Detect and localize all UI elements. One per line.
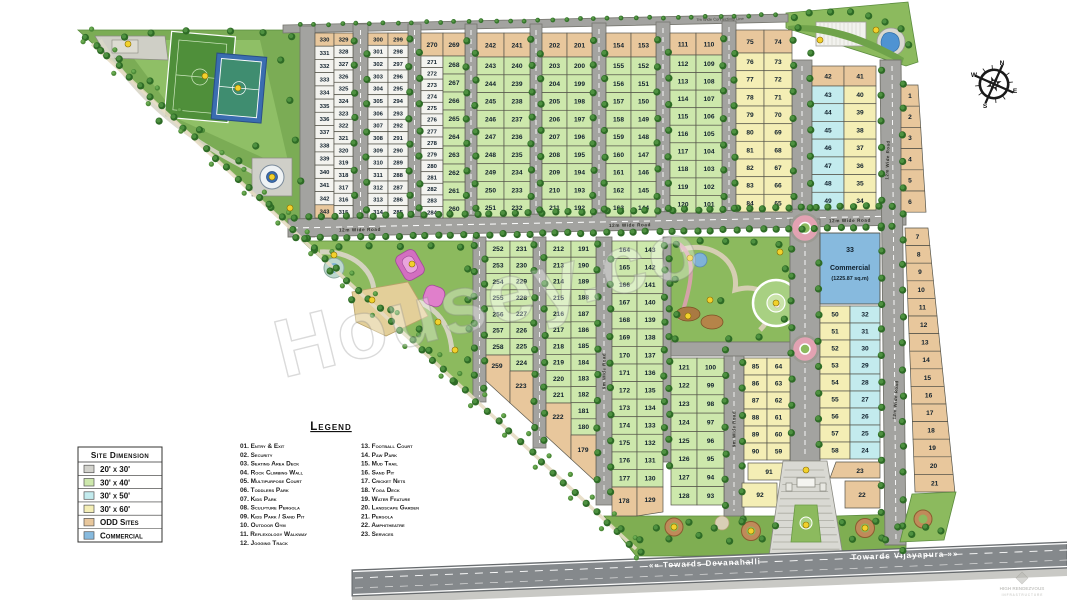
svg-text:87: 87 bbox=[752, 398, 760, 405]
svg-text:132: 132 bbox=[644, 440, 655, 447]
svg-text:289: 289 bbox=[393, 161, 404, 167]
svg-text:30' x 50': 30' x 50' bbox=[100, 492, 130, 501]
svg-text:97: 97 bbox=[707, 419, 715, 426]
svg-text:238: 238 bbox=[511, 99, 522, 106]
svg-text:177: 177 bbox=[619, 475, 630, 482]
svg-text:37: 37 bbox=[856, 145, 864, 152]
svg-text:56: 56 bbox=[831, 414, 839, 421]
svg-text:114: 114 bbox=[678, 96, 689, 103]
svg-text:32: 32 bbox=[861, 312, 869, 319]
svg-text:16: 16 bbox=[925, 392, 933, 399]
svg-text:168: 168 bbox=[619, 317, 630, 324]
svg-text:08. Sculpture Pergola: 08. Sculpture Pergola bbox=[240, 505, 300, 512]
svg-text:1: 1 bbox=[908, 93, 912, 100]
svg-text:53: 53 bbox=[831, 363, 839, 370]
svg-text:66: 66 bbox=[774, 183, 782, 190]
svg-text:310: 310 bbox=[373, 161, 384, 167]
svg-text:ODD Sites: ODD Sites bbox=[100, 518, 139, 527]
svg-text:52: 52 bbox=[831, 346, 839, 353]
svg-text:264: 264 bbox=[448, 134, 459, 141]
svg-text:326: 326 bbox=[339, 74, 350, 80]
svg-text:19. Water Feature: 19. Water Feature bbox=[361, 496, 410, 503]
svg-text:316: 316 bbox=[339, 198, 350, 204]
svg-text:80: 80 bbox=[746, 130, 754, 137]
svg-text:59: 59 bbox=[775, 449, 783, 456]
svg-text:305: 305 bbox=[373, 99, 384, 105]
svg-text:248: 248 bbox=[485, 152, 496, 159]
svg-text:92: 92 bbox=[756, 492, 764, 499]
svg-text:127: 127 bbox=[678, 475, 689, 482]
svg-text:185: 185 bbox=[578, 343, 589, 350]
svg-text:10. Outdoor Gym: 10. Outdoor Gym bbox=[240, 522, 286, 529]
svg-text:182: 182 bbox=[578, 392, 589, 399]
svg-text:38: 38 bbox=[856, 127, 864, 134]
svg-text:307: 307 bbox=[373, 124, 384, 130]
svg-text:31: 31 bbox=[861, 329, 869, 336]
svg-text:05. Multipurpose Court: 05. Multipurpose Court bbox=[240, 478, 302, 485]
svg-text:234: 234 bbox=[511, 170, 522, 177]
svg-text:96: 96 bbox=[707, 438, 715, 445]
svg-text:318: 318 bbox=[339, 173, 350, 179]
svg-text:36: 36 bbox=[856, 163, 864, 170]
svg-text:150: 150 bbox=[638, 99, 649, 106]
svg-text:237: 237 bbox=[511, 116, 522, 123]
svg-text:160: 160 bbox=[613, 152, 624, 159]
svg-text:111: 111 bbox=[678, 41, 689, 48]
svg-text:09. Kids Park / Sand Pit: 09. Kids Park / Sand Pit bbox=[240, 513, 305, 520]
svg-text:149: 149 bbox=[638, 116, 649, 123]
svg-text:334: 334 bbox=[320, 91, 331, 97]
svg-text:296: 296 bbox=[393, 74, 404, 80]
svg-text:113: 113 bbox=[678, 78, 689, 85]
svg-text:9m Wide Road: 9m Wide Road bbox=[602, 353, 607, 389]
svg-text:60: 60 bbox=[775, 432, 783, 439]
svg-text:130: 130 bbox=[644, 475, 655, 482]
svg-text:303: 303 bbox=[373, 74, 384, 80]
svg-text:294: 294 bbox=[393, 99, 404, 105]
svg-text:04. Rock Climbing Wall: 04. Rock Climbing Wall bbox=[240, 469, 304, 476]
svg-text:Site Dimension: Site Dimension bbox=[91, 451, 149, 460]
svg-text:292: 292 bbox=[393, 124, 404, 130]
svg-text:181: 181 bbox=[578, 408, 589, 415]
svg-text:267: 267 bbox=[448, 80, 459, 87]
svg-text:270: 270 bbox=[426, 42, 437, 49]
svg-text:295: 295 bbox=[393, 87, 404, 93]
svg-text:129: 129 bbox=[644, 497, 655, 504]
svg-text:139: 139 bbox=[644, 317, 655, 324]
svg-text:197: 197 bbox=[574, 116, 585, 123]
svg-text:135: 135 bbox=[644, 388, 655, 395]
svg-text:39: 39 bbox=[856, 110, 864, 117]
svg-text:282: 282 bbox=[427, 187, 438, 193]
svg-text:194: 194 bbox=[574, 170, 585, 177]
svg-text:250: 250 bbox=[485, 187, 496, 194]
svg-text:148: 148 bbox=[638, 134, 649, 141]
svg-text:288: 288 bbox=[393, 173, 404, 179]
svg-text:258: 258 bbox=[492, 344, 503, 351]
svg-text:244: 244 bbox=[485, 81, 496, 88]
svg-text:104: 104 bbox=[703, 149, 714, 156]
svg-text:278: 278 bbox=[427, 141, 438, 147]
svg-text:41: 41 bbox=[856, 73, 864, 80]
svg-text:47: 47 bbox=[824, 163, 832, 170]
svg-text:90: 90 bbox=[752, 449, 760, 456]
svg-text:259: 259 bbox=[491, 363, 502, 370]
svg-text:57: 57 bbox=[831, 431, 839, 438]
svg-text:249: 249 bbox=[485, 170, 496, 177]
svg-text:124: 124 bbox=[678, 419, 689, 426]
svg-text:323: 323 bbox=[339, 111, 350, 117]
svg-text:204: 204 bbox=[549, 81, 560, 88]
svg-text:324: 324 bbox=[339, 99, 350, 105]
svg-text:86: 86 bbox=[752, 381, 760, 388]
svg-text:312: 312 bbox=[373, 185, 384, 191]
svg-text:233: 233 bbox=[511, 187, 522, 194]
svg-text:27: 27 bbox=[861, 397, 869, 404]
svg-text:50: 50 bbox=[831, 312, 839, 319]
svg-text:79: 79 bbox=[746, 112, 754, 119]
svg-text:28: 28 bbox=[861, 380, 869, 387]
svg-text:219: 219 bbox=[553, 360, 564, 367]
svg-text:325: 325 bbox=[339, 87, 350, 93]
svg-text:306: 306 bbox=[373, 111, 384, 117]
svg-text:210: 210 bbox=[549, 187, 560, 194]
svg-text:247: 247 bbox=[485, 134, 496, 141]
svg-text:131: 131 bbox=[644, 458, 655, 465]
svg-text:174: 174 bbox=[619, 423, 630, 430]
svg-text:172: 172 bbox=[619, 388, 630, 395]
svg-text:03. Seating Area Deck: 03. Seating Area Deck bbox=[240, 461, 299, 468]
svg-text:24: 24 bbox=[861, 448, 869, 455]
svg-text:Legend: Legend bbox=[310, 421, 351, 433]
svg-text:Commercial: Commercial bbox=[100, 532, 143, 541]
svg-text:276: 276 bbox=[427, 118, 438, 124]
svg-text:108: 108 bbox=[703, 78, 714, 85]
svg-text:283: 283 bbox=[427, 199, 438, 205]
svg-text:74: 74 bbox=[774, 39, 782, 46]
svg-text:339: 339 bbox=[320, 157, 331, 163]
svg-text:20: 20 bbox=[930, 463, 938, 470]
svg-text:94: 94 bbox=[707, 475, 715, 482]
svg-text:14. Paw Park: 14. Paw Park bbox=[361, 452, 397, 459]
svg-text:138: 138 bbox=[644, 335, 655, 342]
svg-text:178: 178 bbox=[618, 498, 629, 505]
svg-text:78: 78 bbox=[746, 94, 754, 101]
svg-text:342: 342 bbox=[320, 196, 331, 202]
svg-text:17: 17 bbox=[926, 410, 934, 417]
svg-text:293: 293 bbox=[393, 111, 404, 117]
svg-text:321: 321 bbox=[339, 136, 350, 142]
svg-text:207: 207 bbox=[549, 134, 560, 141]
svg-text:102: 102 bbox=[703, 184, 714, 191]
svg-text:201: 201 bbox=[574, 42, 585, 49]
svg-text:261: 261 bbox=[448, 188, 459, 195]
svg-text:308: 308 bbox=[373, 136, 384, 142]
svg-text:13. Football Court: 13. Football Court bbox=[361, 443, 413, 450]
svg-text:89: 89 bbox=[752, 432, 760, 439]
svg-text:179: 179 bbox=[577, 447, 588, 454]
svg-text:329: 329 bbox=[339, 37, 350, 43]
svg-text:83: 83 bbox=[746, 183, 754, 190]
svg-text:51: 51 bbox=[831, 329, 839, 336]
svg-text:147: 147 bbox=[638, 152, 649, 159]
svg-text:340: 340 bbox=[320, 170, 331, 176]
svg-text:40: 40 bbox=[856, 92, 864, 99]
svg-text:15: 15 bbox=[924, 375, 932, 382]
svg-text:286: 286 bbox=[393, 198, 404, 204]
svg-text:281: 281 bbox=[427, 176, 438, 182]
svg-text:77: 77 bbox=[746, 77, 754, 84]
svg-text:206: 206 bbox=[549, 116, 560, 123]
svg-text:274: 274 bbox=[427, 95, 438, 101]
svg-text:196: 196 bbox=[574, 134, 585, 141]
svg-text:12m Wide Road: 12m Wide Road bbox=[829, 218, 871, 224]
svg-text:7: 7 bbox=[916, 234, 920, 241]
svg-text:159: 159 bbox=[613, 134, 624, 141]
svg-text:125: 125 bbox=[678, 438, 689, 445]
svg-text:3: 3 bbox=[908, 135, 912, 142]
svg-text:100: 100 bbox=[705, 364, 716, 371]
svg-text:33: 33 bbox=[846, 247, 854, 254]
svg-text:23: 23 bbox=[856, 468, 864, 475]
svg-text:06. Toddlers Park: 06. Toddlers Park bbox=[240, 487, 289, 494]
svg-text:222: 222 bbox=[552, 414, 563, 421]
svg-text:18: 18 bbox=[927, 428, 935, 435]
svg-text:123: 123 bbox=[678, 401, 689, 408]
svg-text:221: 221 bbox=[553, 392, 564, 399]
svg-text:02. Security: 02. Security bbox=[240, 452, 273, 459]
svg-text:72: 72 bbox=[774, 77, 782, 84]
svg-text:20. Landscape Garden: 20. Landscape Garden bbox=[361, 505, 419, 512]
svg-text:54: 54 bbox=[831, 380, 839, 387]
svg-text:338: 338 bbox=[320, 143, 331, 149]
svg-text:337: 337 bbox=[320, 130, 331, 136]
svg-text:18. Yoga Deck: 18. Yoga Deck bbox=[361, 487, 400, 494]
svg-text:205: 205 bbox=[549, 99, 560, 106]
svg-text:327: 327 bbox=[339, 62, 350, 68]
svg-text:263: 263 bbox=[448, 152, 459, 159]
svg-text:11. Reflexology Walkway: 11. Reflexology Walkway bbox=[240, 531, 307, 538]
svg-text:8: 8 bbox=[917, 252, 921, 259]
svg-text:11: 11 bbox=[919, 304, 926, 311]
svg-text:9m Wide Road: 9m Wide Road bbox=[732, 411, 737, 447]
svg-text:55: 55 bbox=[831, 397, 839, 404]
svg-text:48: 48 bbox=[824, 181, 832, 188]
svg-text:58: 58 bbox=[831, 448, 839, 455]
svg-text:235: 235 bbox=[511, 152, 522, 159]
svg-text:62: 62 bbox=[775, 398, 783, 405]
svg-text:161: 161 bbox=[613, 170, 624, 177]
svg-text:4: 4 bbox=[908, 156, 912, 163]
svg-text:239: 239 bbox=[511, 81, 522, 88]
svg-text:12: 12 bbox=[920, 322, 928, 329]
svg-text:311: 311 bbox=[373, 173, 383, 179]
svg-text:268: 268 bbox=[448, 62, 459, 69]
svg-text:107: 107 bbox=[703, 96, 714, 103]
svg-text:322: 322 bbox=[339, 124, 350, 130]
svg-text:134: 134 bbox=[644, 405, 655, 412]
svg-text:137: 137 bbox=[644, 352, 655, 359]
svg-text:272: 272 bbox=[427, 72, 438, 78]
svg-text:(1225.87 sq.m): (1225.87 sq.m) bbox=[831, 276, 868, 282]
svg-text:313: 313 bbox=[373, 198, 384, 204]
svg-text:301: 301 bbox=[373, 50, 384, 56]
svg-text:300: 300 bbox=[373, 37, 384, 43]
svg-text:30: 30 bbox=[861, 346, 869, 353]
svg-text:45: 45 bbox=[824, 127, 832, 134]
svg-text:195: 195 bbox=[574, 152, 585, 159]
svg-text:319: 319 bbox=[339, 161, 350, 167]
svg-text:91: 91 bbox=[765, 469, 773, 476]
svg-text:200: 200 bbox=[574, 63, 585, 70]
svg-text:14: 14 bbox=[922, 357, 930, 364]
svg-text:I N F R A S T R U C T U R E: I N F R A S T R U C T U R E bbox=[1002, 593, 1043, 597]
svg-text:224: 224 bbox=[516, 360, 527, 367]
svg-text:10: 10 bbox=[918, 287, 926, 294]
svg-text:176: 176 bbox=[619, 458, 630, 465]
svg-text:118: 118 bbox=[678, 166, 689, 173]
svg-text:184: 184 bbox=[578, 359, 589, 366]
svg-text:145: 145 bbox=[638, 187, 649, 194]
svg-text:95: 95 bbox=[707, 456, 715, 463]
svg-text:265: 265 bbox=[448, 116, 459, 123]
svg-text:198: 198 bbox=[574, 99, 585, 106]
svg-text:330: 330 bbox=[320, 38, 331, 44]
svg-text:12m Wide Road: 12m Wide Road bbox=[339, 227, 381, 233]
svg-text:146: 146 bbox=[638, 170, 649, 177]
svg-text:157: 157 bbox=[613, 99, 624, 106]
svg-text:335: 335 bbox=[320, 104, 331, 110]
svg-text:262: 262 bbox=[448, 170, 459, 177]
svg-text:333: 333 bbox=[320, 77, 331, 83]
svg-text:220: 220 bbox=[553, 376, 564, 383]
svg-text:170: 170 bbox=[619, 352, 630, 359]
svg-text:75: 75 bbox=[746, 39, 754, 46]
svg-text:291: 291 bbox=[393, 136, 404, 142]
svg-text:30' x 40': 30' x 40' bbox=[100, 478, 130, 487]
svg-text:116: 116 bbox=[678, 131, 689, 138]
svg-text:122: 122 bbox=[678, 383, 689, 390]
svg-text:193: 193 bbox=[574, 187, 585, 194]
svg-text:21: 21 bbox=[931, 480, 939, 487]
svg-text:64: 64 bbox=[775, 364, 783, 371]
svg-text:328: 328 bbox=[339, 50, 350, 56]
svg-text:298: 298 bbox=[393, 50, 404, 56]
svg-text:336: 336 bbox=[320, 117, 331, 123]
svg-text:15. Mud Trail: 15. Mud Trail bbox=[361, 461, 398, 468]
svg-text:99: 99 bbox=[707, 383, 715, 390]
svg-text:63: 63 bbox=[775, 381, 783, 388]
svg-text:225: 225 bbox=[516, 344, 527, 351]
svg-text:6: 6 bbox=[908, 199, 912, 206]
svg-text:128: 128 bbox=[678, 493, 689, 500]
svg-text:202: 202 bbox=[549, 42, 560, 49]
svg-text:82: 82 bbox=[746, 165, 754, 172]
svg-text:35: 35 bbox=[856, 181, 864, 188]
svg-text:175: 175 bbox=[619, 440, 630, 447]
svg-text:N: N bbox=[1000, 60, 1005, 67]
svg-text:317: 317 bbox=[339, 185, 350, 191]
svg-text:275: 275 bbox=[427, 106, 438, 112]
svg-text:106: 106 bbox=[703, 114, 714, 121]
svg-text:236: 236 bbox=[511, 134, 522, 141]
svg-text:271: 271 bbox=[427, 60, 438, 66]
svg-text:223: 223 bbox=[515, 383, 526, 390]
svg-text:136: 136 bbox=[644, 370, 655, 377]
svg-text:13: 13 bbox=[921, 340, 929, 347]
svg-text:203: 203 bbox=[549, 63, 560, 70]
svg-text:243: 243 bbox=[485, 63, 496, 70]
svg-text:22: 22 bbox=[858, 492, 866, 499]
svg-text:105: 105 bbox=[703, 131, 714, 138]
svg-text:68: 68 bbox=[774, 147, 782, 154]
svg-text:17. Cricket Nets: 17. Cricket Nets bbox=[361, 478, 406, 485]
svg-text:209: 209 bbox=[549, 170, 560, 177]
svg-text:121: 121 bbox=[678, 364, 689, 371]
svg-text:332: 332 bbox=[320, 64, 331, 70]
svg-text:25: 25 bbox=[861, 431, 869, 438]
svg-text:34: 34 bbox=[856, 198, 864, 205]
svg-text:186: 186 bbox=[578, 327, 589, 334]
svg-text:151: 151 bbox=[638, 81, 649, 88]
svg-text:98: 98 bbox=[707, 401, 715, 408]
svg-text:290: 290 bbox=[393, 148, 404, 154]
svg-text:208: 208 bbox=[549, 152, 560, 159]
svg-text:280: 280 bbox=[427, 164, 438, 170]
svg-text:01. Entry & Exit: 01. Entry & Exit bbox=[240, 443, 285, 450]
svg-text:Commercial: Commercial bbox=[830, 265, 870, 272]
svg-text:S: S bbox=[983, 103, 988, 110]
svg-text:156: 156 bbox=[613, 81, 624, 88]
svg-text:246: 246 bbox=[485, 116, 496, 123]
svg-text:73: 73 bbox=[774, 59, 782, 66]
svg-text:30' x 60': 30' x 60' bbox=[100, 505, 130, 514]
svg-text:158: 158 bbox=[613, 116, 624, 123]
svg-text:242: 242 bbox=[485, 42, 496, 49]
svg-text:61: 61 bbox=[775, 415, 783, 422]
svg-text:299: 299 bbox=[393, 37, 404, 43]
svg-text:297: 297 bbox=[393, 62, 404, 68]
svg-text:43: 43 bbox=[824, 92, 832, 99]
svg-text:103: 103 bbox=[703, 166, 714, 173]
svg-text:115: 115 bbox=[678, 114, 689, 121]
svg-text:76: 76 bbox=[746, 59, 754, 66]
svg-text:67: 67 bbox=[774, 165, 782, 172]
svg-text:117: 117 bbox=[678, 149, 689, 156]
svg-text:273: 273 bbox=[427, 83, 438, 89]
svg-text:152: 152 bbox=[638, 63, 649, 70]
svg-text:173: 173 bbox=[619, 405, 630, 412]
svg-text:20' x 30': 20' x 30' bbox=[100, 465, 130, 474]
svg-text:154: 154 bbox=[613, 42, 624, 49]
svg-text:26: 26 bbox=[861, 414, 869, 421]
svg-text:245: 245 bbox=[485, 99, 496, 106]
svg-text:110: 110 bbox=[704, 41, 715, 48]
svg-text:2: 2 bbox=[908, 114, 912, 121]
svg-text:12. Jogging Track: 12. Jogging Track bbox=[240, 540, 288, 547]
svg-text:218: 218 bbox=[553, 343, 564, 350]
svg-text:19: 19 bbox=[929, 445, 937, 452]
svg-text:240: 240 bbox=[511, 63, 522, 70]
svg-text:07. Kids Park: 07. Kids Park bbox=[240, 496, 277, 503]
svg-text:169: 169 bbox=[619, 335, 630, 342]
svg-text:269: 269 bbox=[448, 42, 459, 49]
svg-text:70: 70 bbox=[774, 112, 782, 119]
svg-text:29: 29 bbox=[861, 363, 869, 370]
svg-text:302: 302 bbox=[373, 62, 384, 68]
svg-text:341: 341 bbox=[320, 183, 331, 189]
svg-text:21. Pergola: 21. Pergola bbox=[361, 513, 393, 520]
